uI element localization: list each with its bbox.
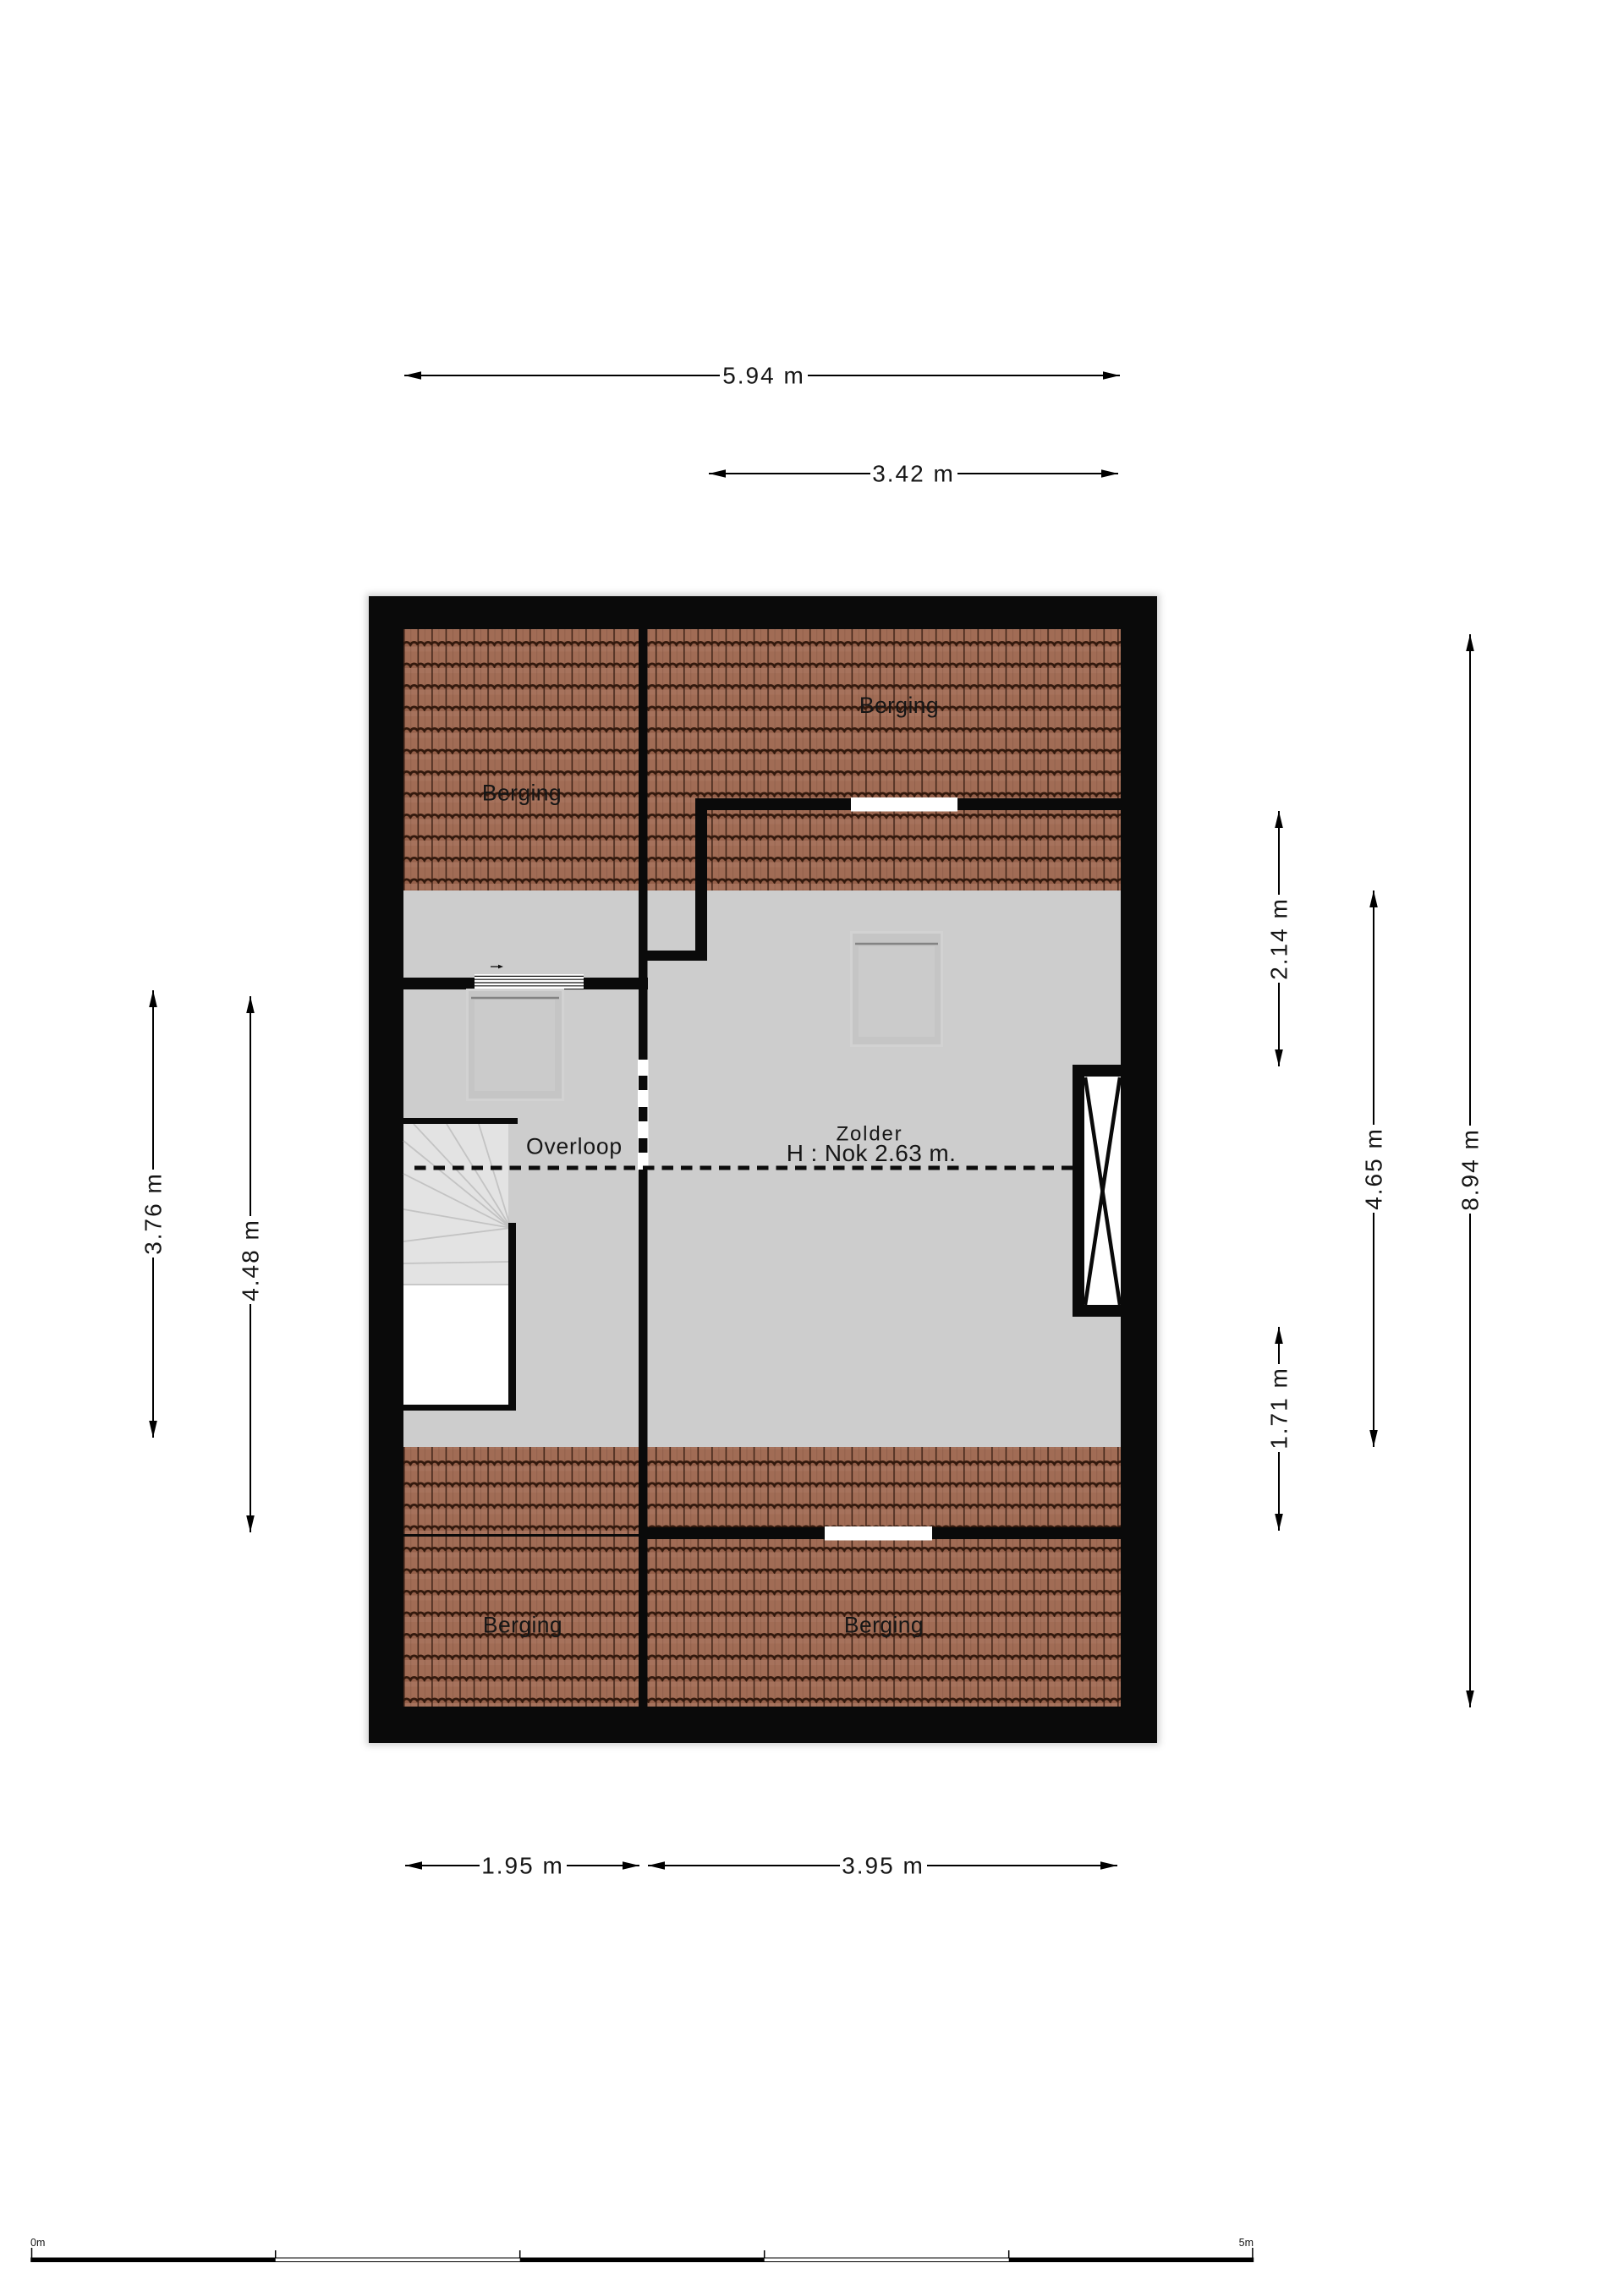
svg-text:1.95 m: 1.95 m [481,1853,564,1879]
svg-text:3.76 m: 3.76 m [140,1172,167,1255]
svg-text:5m: 5m [1239,2237,1254,2249]
svg-text:H : Nok 2.63 m.: H : Nok 2.63 m. [787,1140,957,1166]
svg-text:3.42 m: 3.42 m [872,461,955,487]
svg-text:Berging: Berging [844,1613,924,1638]
svg-text:4.65 m: 4.65 m [1361,1127,1387,1210]
svg-text:Berging: Berging [483,1613,562,1638]
svg-text:Berging: Berging [482,781,562,806]
svg-text:2.14 m: 2.14 m [1266,897,1292,980]
svg-text:5.94 m: 5.94 m [722,363,805,389]
svg-text:8.94 m: 8.94 m [1457,1128,1484,1211]
svg-text:Overloop: Overloop [526,1134,623,1159]
svg-text:0m: 0m [30,2237,45,2249]
svg-text:1.71 m: 1.71 m [1266,1367,1292,1449]
svg-text:3.95 m: 3.95 m [842,1853,924,1879]
svg-text:Berging: Berging [859,693,939,718]
svg-text:4.48 m: 4.48 m [238,1219,264,1301]
